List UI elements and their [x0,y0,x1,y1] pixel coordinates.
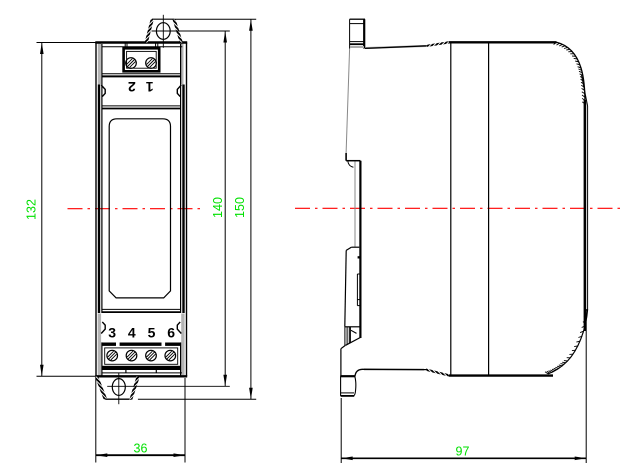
svg-text:3: 3 [108,325,116,341]
svg-text:150: 150 [233,197,247,218]
svg-text:4: 4 [128,325,136,341]
svg-text:140: 140 [211,197,225,218]
svg-text:132: 132 [24,199,38,220]
svg-text:1: 1 [146,79,154,95]
svg-text:6: 6 [167,325,175,341]
svg-text:36: 36 [134,442,148,456]
svg-text:2: 2 [128,79,136,95]
svg-text:5: 5 [148,325,156,341]
svg-text:97: 97 [456,445,470,459]
